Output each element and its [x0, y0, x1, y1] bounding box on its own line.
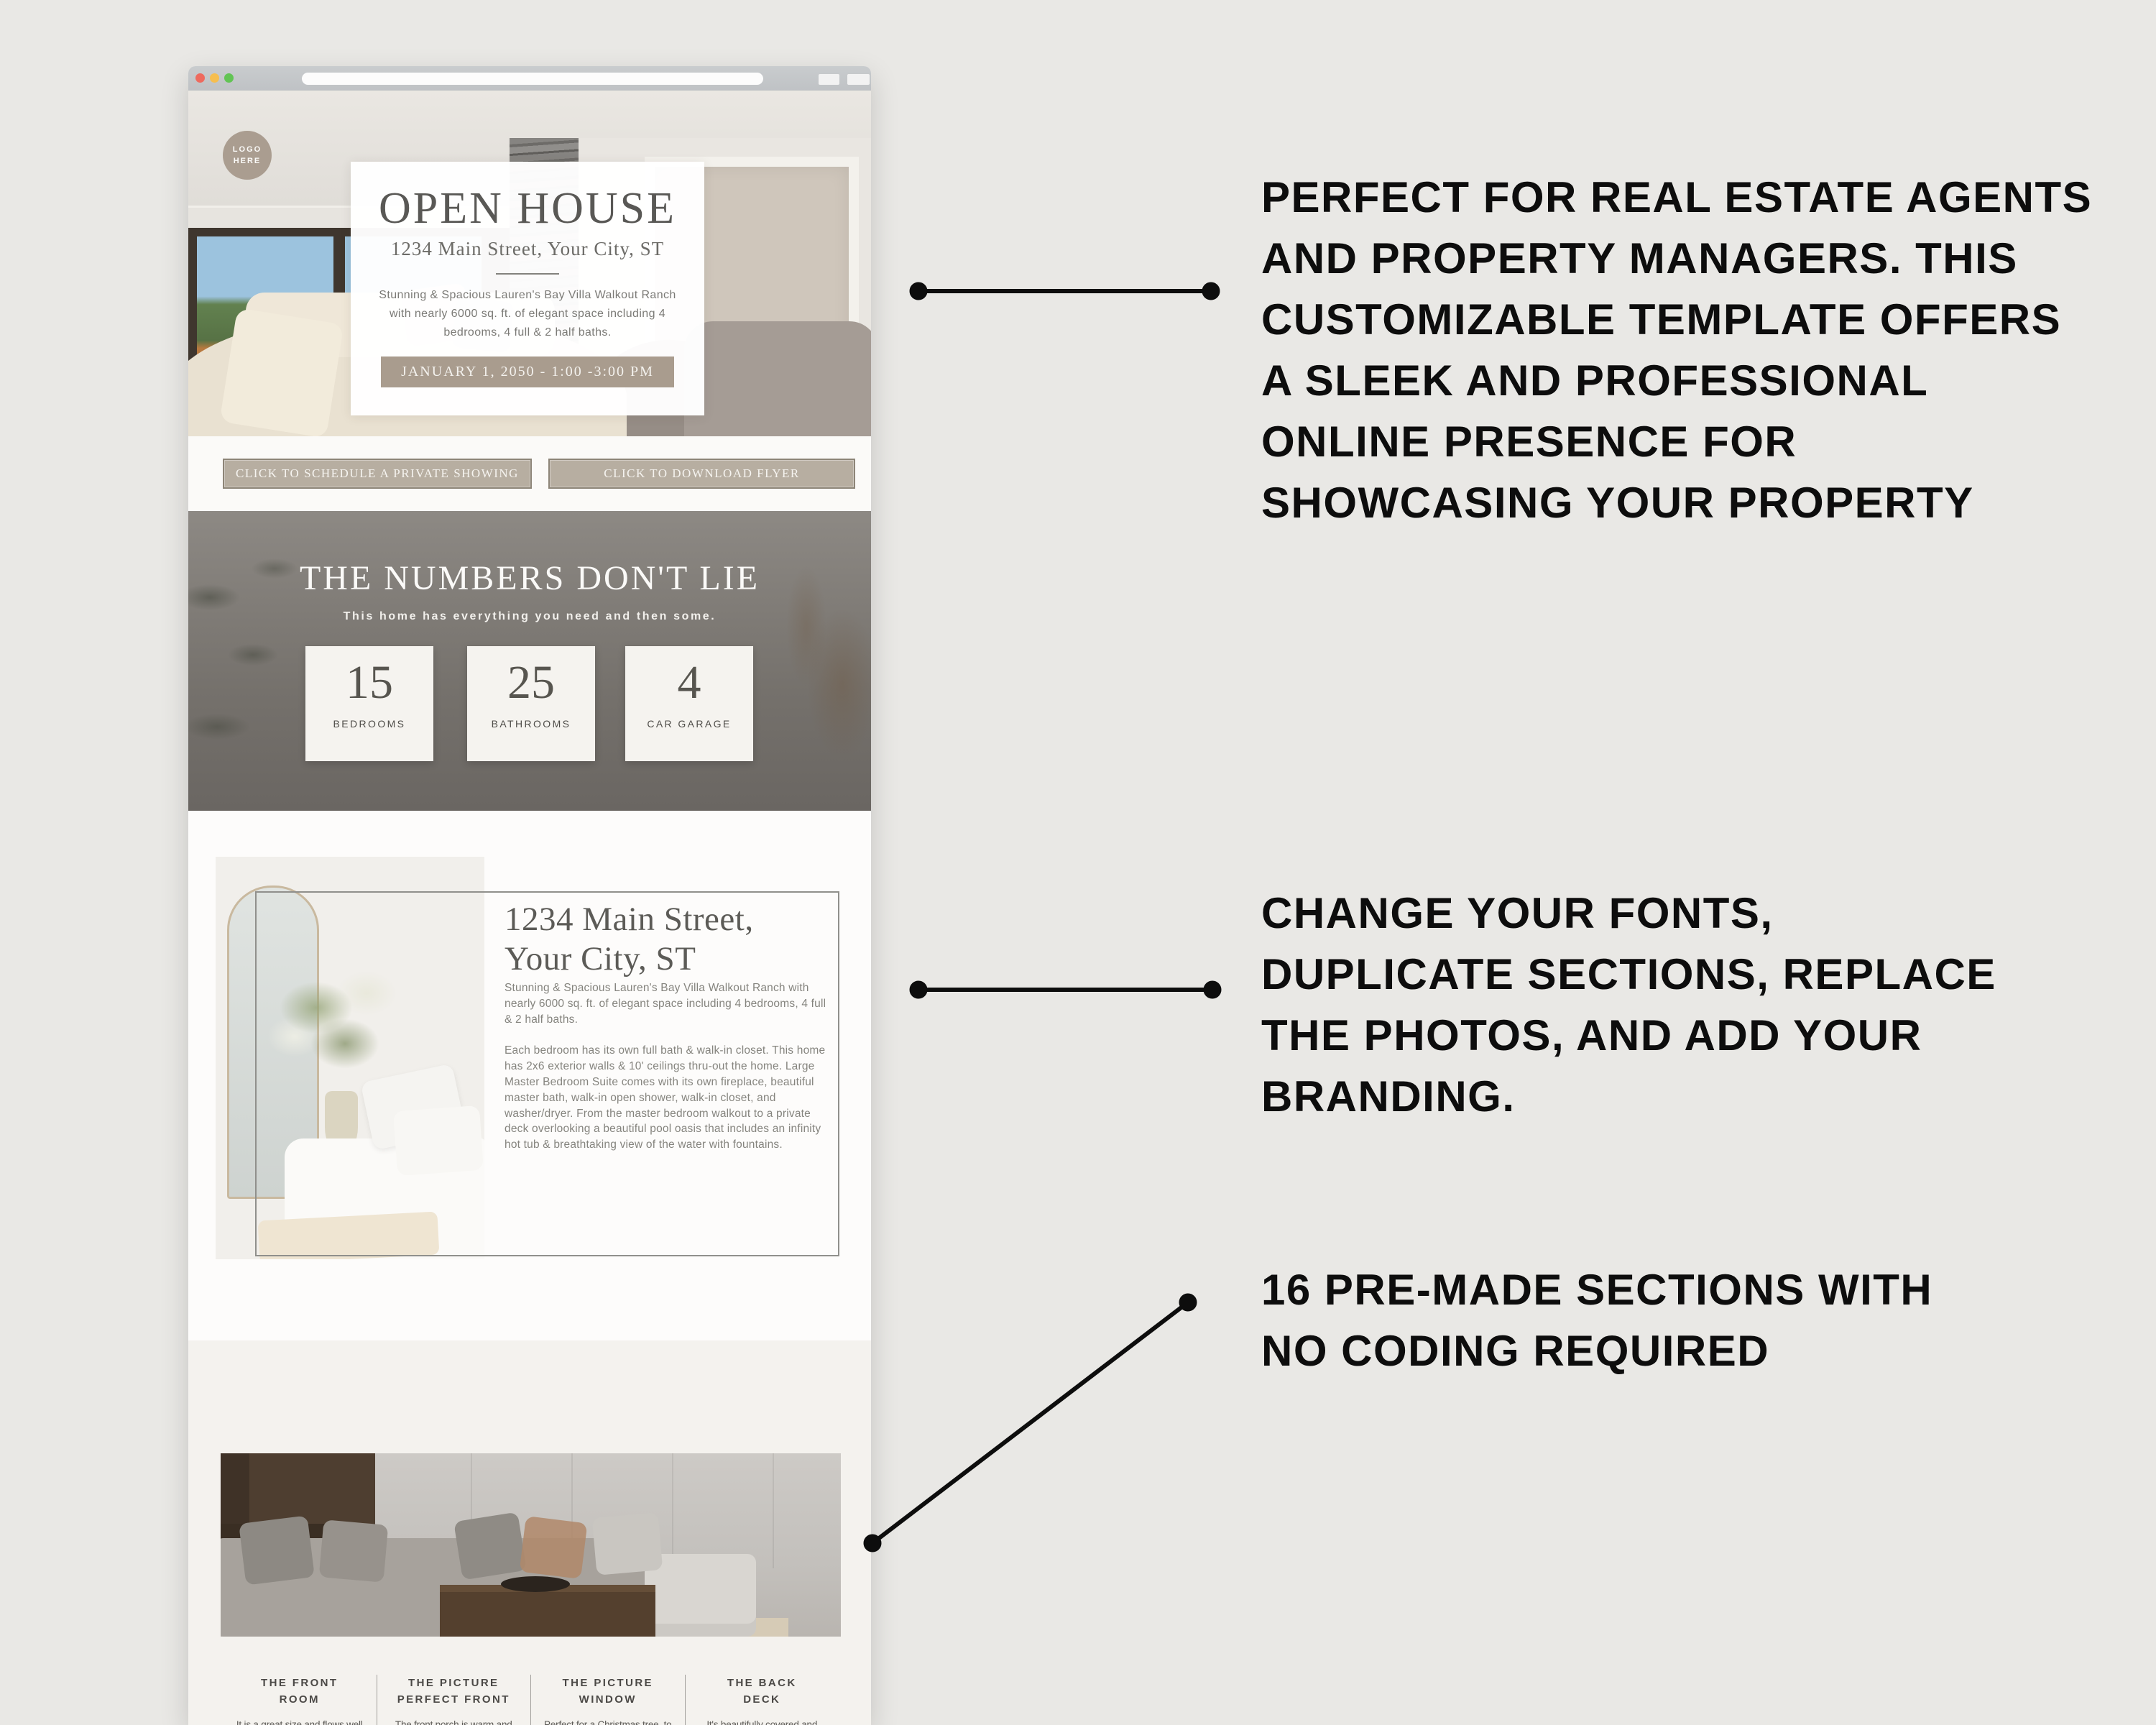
numbers-title: THE NUMBERS DON'T LIE: [188, 558, 871, 598]
hero-card: OPEN HOUSE 1234 Main Street, Your City, …: [351, 162, 704, 415]
column-body: The front porch is warm and welcoming. Y…: [389, 1717, 520, 1725]
detail-paragraph-2: Each bedroom has its own full bath & wal…: [505, 1043, 834, 1153]
hero-photo-armchair: [684, 321, 871, 436]
stat-card-garage: 4 CAR GARAGE: [625, 646, 753, 761]
browser-toolbar-button[interactable]: [847, 74, 870, 85]
close-window-icon[interactable]: [195, 73, 205, 83]
annotation-line: PERFECT FOR REAL ESTATE AGENTS: [1261, 167, 2092, 228]
column-title-line: THE BACK: [697, 1675, 828, 1691]
numbers-section: THE NUMBERS DON'T LIE This home has ever…: [188, 511, 871, 811]
numbers-subtitle: This home has everything you need and th…: [188, 610, 871, 623]
bathrooms-count: 25: [467, 659, 595, 707]
hero-photo-throw-blanket: [219, 308, 344, 436]
column-title: THE PICTURE WINDOW: [543, 1675, 673, 1708]
garage-label: CAR GARAGE: [625, 718, 753, 730]
annotation-line: CHANGE YOUR FONTS,: [1261, 883, 1996, 944]
highlight-column-back-deck: THE BACK DECK It's beautifully covered a…: [685, 1675, 839, 1725]
living-room-pillow: [239, 1515, 315, 1585]
annotation-block-3: 16 PRE-MADE SECTIONS WITH NO CODING REQU…: [1261, 1259, 1932, 1381]
living-room-coffee-table: [440, 1585, 655, 1637]
hero-description: Stunning & Spacious Lauren's Bay Villa W…: [377, 286, 678, 342]
annotation-line: AND PROPERTY MANAGERS. THIS: [1261, 228, 2092, 289]
annotation-block-1: PERFECT FOR REAL ESTATE AGENTS AND PROPE…: [1261, 167, 2092, 533]
detail-address-line1: 1234 Main Street,: [505, 900, 842, 939]
detail-address-heading: 1234 Main Street, Your City, ST: [505, 900, 842, 978]
cta-strip-top: CLICK TO SCHEDULE A PRIVATE SHOWING CLIC…: [188, 436, 871, 511]
url-bar[interactable]: [302, 73, 763, 85]
bathrooms-label: BATHROOMS: [467, 718, 595, 730]
browser-chrome-bar: [188, 66, 871, 91]
column-body: It's beautifully covered and looks out a…: [697, 1717, 828, 1725]
living-room-pillow: [520, 1516, 588, 1579]
detail-paragraph-1: Stunning & Spacious Lauren's Bay Villa W…: [505, 980, 834, 1027]
highlight-column-perfect-front: THE PICTURE PERFECT FRONT The front porc…: [377, 1675, 531, 1725]
connector-line-2: [910, 981, 1221, 998]
hero-address: 1234 Main Street, Your City, ST: [351, 238, 704, 260]
listing-detail-section: 1234 Main Street, Your City, ST Stunning…: [188, 811, 871, 1340]
column-title-line: DECK: [697, 1691, 828, 1708]
annotation-line: DUPLICATE SECTIONS, REPLACE: [1261, 944, 1996, 1005]
stat-card-bedrooms: 15 BEDROOMS: [305, 646, 433, 761]
living-room-pillow: [319, 1519, 389, 1583]
browser-window: LOGO HERE OPEN HOUSE 1234 Main Street, Y…: [188, 66, 871, 1725]
page-background: LOGO HERE OPEN HOUSE 1234 Main Street, Y…: [0, 0, 2156, 1725]
column-title-line: THE PICTURE: [543, 1675, 673, 1691]
highlight-columns: THE FRONT ROOM It is a great size and fl…: [223, 1675, 839, 1725]
column-title-line: PERFECT FRONT: [389, 1691, 520, 1708]
living-room-pillow: [453, 1512, 527, 1580]
living-room-pillow: [592, 1512, 663, 1575]
stat-card-bathrooms: 25 BATHROOMS: [467, 646, 595, 761]
connector-line-1: [910, 282, 1220, 300]
annotation-line: THE PHOTOS, AND ADD YOUR: [1261, 1005, 1996, 1066]
logo-placeholder[interactable]: LOGO HERE: [223, 131, 272, 180]
column-title-line: THE FRONT: [234, 1675, 365, 1691]
garage-count: 4: [625, 659, 753, 707]
open-house-date-banner: JANUARY 1, 2050 - 1:00 -3:00 PM: [381, 356, 674, 387]
column-title-line: ROOM: [234, 1691, 365, 1708]
browser-toolbar-button[interactable]: [819, 74, 839, 85]
annotation-line: ONLINE PRESENCE FOR: [1261, 411, 2092, 472]
column-title: THE PICTURE PERFECT FRONT: [389, 1675, 520, 1708]
hero-divider: [496, 273, 559, 275]
annotation-line: A SLEEK AND PROFESSIONAL: [1261, 350, 2092, 411]
annotation-line: SHOWCASING YOUR PROPERTY: [1261, 472, 2092, 533]
detail-description: Stunning & Spacious Lauren's Bay Villa W…: [505, 980, 834, 1169]
annotation-line: 16 PRE-MADE SECTIONS WITH: [1261, 1259, 1932, 1320]
bedrooms-count: 15: [305, 659, 433, 707]
minimize-window-icon[interactable]: [210, 73, 219, 83]
column-body: It is a great size and flows well into o…: [234, 1717, 365, 1725]
column-body: Perfect for a Christmas tree, to sit and…: [543, 1717, 673, 1725]
annotation-block-2: CHANGE YOUR FONTS, DUPLICATE SECTIONS, R…: [1261, 883, 1996, 1127]
highlight-column-picture-window: THE PICTURE WINDOW Perfect for a Christm…: [530, 1675, 685, 1725]
highlights-section: THE FRONT ROOM It is a great size and fl…: [188, 1340, 871, 1725]
column-title-line: WINDOW: [543, 1691, 673, 1708]
annotation-line: CUSTOMIZABLE TEMPLATE OFFERS: [1261, 289, 2092, 350]
column-title-line: THE PICTURE: [389, 1675, 520, 1691]
living-room-tray: [501, 1576, 570, 1592]
connector-line-3: [864, 1294, 1197, 1552]
annotation-line: NO CODING REQUIRED: [1261, 1320, 1932, 1381]
living-room-photo: [221, 1453, 841, 1637]
highlight-column-front-room: THE FRONT ROOM It is a great size and fl…: [223, 1675, 377, 1725]
bedrooms-label: BEDROOMS: [305, 718, 433, 730]
download-flyer-button[interactable]: CLICK TO DOWNLOAD FLYER: [548, 459, 855, 489]
annotation-line: BRANDING.: [1261, 1066, 1996, 1127]
hero-section: LOGO HERE OPEN HOUSE 1234 Main Street, Y…: [188, 91, 871, 436]
open-house-title: OPEN HOUSE: [351, 186, 704, 231]
maximize-window-icon[interactable]: [224, 73, 234, 83]
column-title: THE BACK DECK: [697, 1675, 828, 1708]
schedule-showing-button[interactable]: CLICK TO SCHEDULE A PRIVATE SHOWING: [223, 459, 532, 489]
detail-address-line2: Your City, ST: [505, 939, 842, 979]
column-title: THE FRONT ROOM: [234, 1675, 365, 1708]
